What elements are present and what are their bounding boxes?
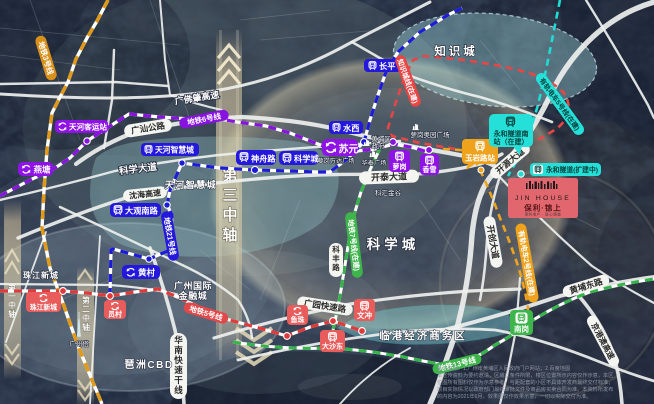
svg-text:长平: 长平 — [379, 61, 395, 71]
svg-text:临港经济商务区: 临港经济商务区 — [379, 329, 467, 342]
svg-text:神舟路: 神舟路 — [251, 154, 276, 164]
svg-text:站（在建）: 站（在建） — [494, 137, 529, 146]
svg-text:开泰大道: 开泰大道 — [371, 170, 407, 182]
svg-text:金融城: 金融城 — [178, 290, 208, 301]
svg-text:科学城: 科学城 — [367, 236, 420, 252]
svg-text:黄村: 黄村 — [138, 268, 156, 278]
svg-text:华南快速干线: 华南快速干线 — [174, 335, 183, 395]
svg-text:广州塔: 广州塔 — [69, 339, 89, 348]
svg-text:琶洲CBD: 琶洲CBD — [124, 359, 173, 371]
svg-text:苏元: 苏元 — [339, 143, 359, 156]
svg-text:天河智慧城: 天河智慧城 — [165, 179, 218, 190]
svg-text:员村: 员村 — [108, 310, 122, 319]
svg-text:华泰广场: 华泰广场 — [362, 159, 387, 167]
svg-text:天河智慧城: 天河智慧城 — [155, 145, 194, 155]
svg-text:JIN HOUSE: JIN HOUSE — [515, 195, 571, 202]
svg-text:广州国际: 广州国际 — [174, 280, 212, 291]
svg-text:第二中轴: 第二中轴 — [82, 295, 90, 332]
svg-text:项目实际情况以政府部门最终审批文件及商品房买卖合同为准。本资: 项目实际情况以政府部门最终审批文件及商品房买卖合同为准。本资料所发布 — [437, 385, 613, 393]
svg-text:水西: 水西 — [343, 123, 359, 133]
svg-text:保利·锦上: 保利·锦上 — [523, 203, 562, 213]
svg-text:保利地产 · 匠心铸造: 保利地产 · 匠心铸造 — [525, 212, 562, 217]
svg-text:永和隧道南: 永和隧道南 — [493, 129, 529, 138]
svg-text:萝岗万达广场: 萝岗万达广场 — [317, 157, 354, 165]
svg-text:大观南路: 大观南路 — [125, 206, 159, 216]
svg-text:知识城: 知识城 — [433, 44, 478, 58]
svg-text:大沙东: 大沙东 — [322, 342, 343, 351]
svg-text:政府: 政府 — [372, 141, 386, 150]
svg-text:萝岗奥园广场: 萝岗奥园广场 — [411, 130, 451, 139]
svg-text:科丰路: 科丰路 — [332, 244, 340, 272]
svg-text:科汇金谷: 科汇金谷 — [375, 188, 402, 197]
svg-text:的内容为2021年6月，效果图仅作效果示意，一切以实际交付为: 的内容为2021年6月，效果图仅作效果示意，一切以实际交付为准。 — [437, 392, 592, 400]
svg-text:黄埔区: 黄埔区 — [371, 134, 391, 143]
svg-text:备注来源：1.广州市黄埔区人民政府门户网站；2.百度地图: 备注来源：1.广州市黄埔区人民政府门户网站；2.百度地图 — [437, 364, 570, 372]
svg-text:燕塘: 燕塘 — [34, 165, 52, 175]
svg-text:玉岩路站: 玉岩路站 — [465, 153, 495, 163]
svg-text:文冲: 文冲 — [357, 310, 372, 320]
svg-text:位图所有图料仅作为示意参考，与距配套的小区不具体开发商最终交: 位图所有图料仅作为示意参考，与距配套的小区不具体开发商最终交付标准， — [437, 378, 613, 386]
svg-text:珠江新城: 珠江新城 — [30, 303, 57, 312]
svg-text:本宣传资料为要约邀请，区域以条件所限，楼区位置所示内容仅作示: 本宣传资料为要约邀请，区域以条件所限，楼区位置所示内容仅作示意，本区 — [437, 371, 613, 379]
svg-text:天河客运站: 天河客运站 — [69, 122, 107, 132]
svg-text:永和隧道(扩建中): 永和隧道(扩建中) — [545, 165, 598, 174]
svg-text:珠江新城: 珠江新城 — [23, 270, 59, 280]
svg-text:鱼珠: 鱼珠 — [291, 315, 306, 324]
svg-text:第一中轴: 第一中轴 — [8, 282, 16, 319]
svg-text:萝岗: 萝岗 — [393, 162, 407, 171]
svg-text:香雪: 香雪 — [422, 165, 437, 174]
svg-text:南岗: 南岗 — [514, 324, 529, 334]
svg-text:科学城: 科学城 — [294, 154, 319, 164]
